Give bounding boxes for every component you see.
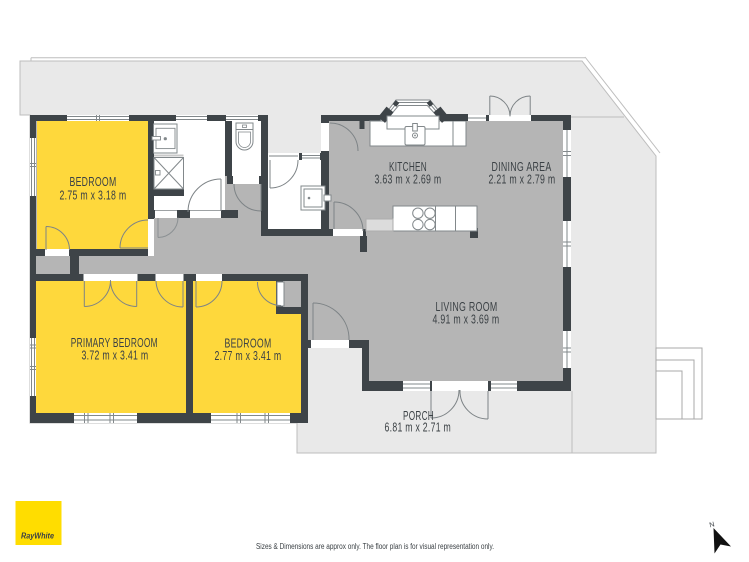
svg-text:3.63 m x 2.69 m: 3.63 m x 2.69 m (375, 173, 442, 187)
svg-text:BEDROOM: BEDROOM (70, 175, 117, 189)
svg-text:3.72 m x 3.41 m: 3.72 m x 3.41 m (82, 349, 149, 363)
svg-text:2.75 m x 3.18 m: 2.75 m x 3.18 m (60, 189, 127, 203)
svg-text:Sizes & Dimensions are approx: Sizes & Dimensions are approx only. The … (256, 542, 494, 551)
svg-text:2.77 m x 3.41 m: 2.77 m x 3.41 m (215, 349, 282, 363)
svg-text:6.81 m x 2.71 m: 6.81 m x 2.71 m (385, 420, 452, 434)
svg-text:4.91 m x 3.69 m: 4.91 m x 3.69 m (433, 313, 500, 327)
svg-text:2.21 m x 2.79 m: 2.21 m x 2.79 m (489, 173, 556, 187)
svg-text:RayWhite: RayWhite (21, 532, 55, 541)
